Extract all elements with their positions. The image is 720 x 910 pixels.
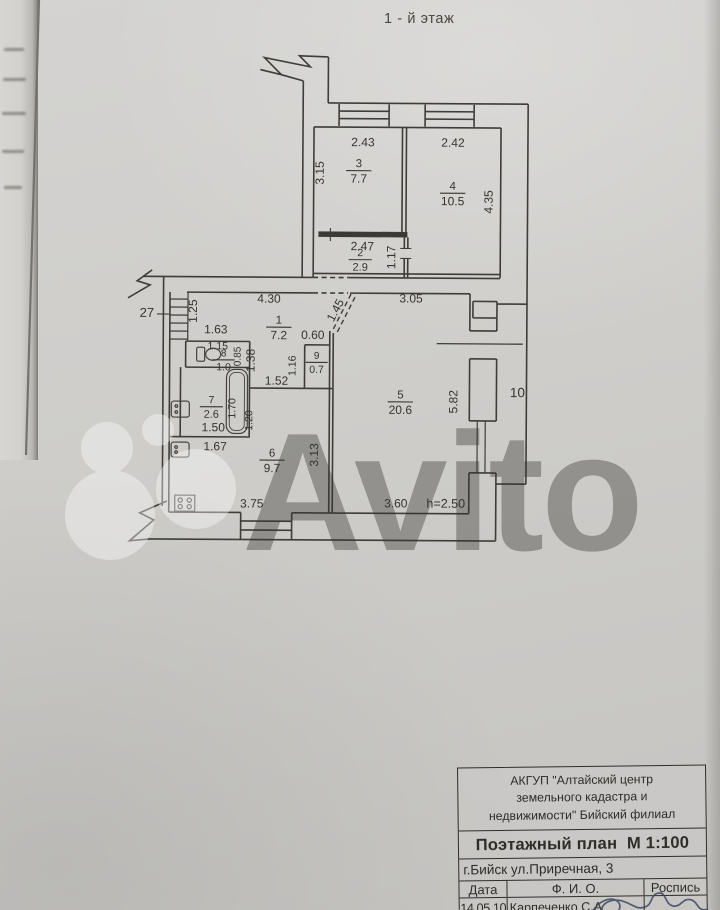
object-address: г.Бийск ул.Приречная, 3 bbox=[459, 856, 706, 881]
dimension-label: 2.47 bbox=[351, 239, 375, 253]
room-number: 6 bbox=[269, 448, 275, 460]
room-area: 2.6 bbox=[204, 409, 219, 421]
dimension-label: 27 bbox=[140, 305, 155, 320]
room-number: 5 bbox=[397, 389, 403, 401]
dimension-label: 1.25 bbox=[186, 299, 200, 323]
date-value: 14.05.10 bbox=[460, 898, 508, 910]
walls-layer bbox=[127, 55, 529, 543]
room-number: 1 bbox=[276, 315, 282, 327]
dimension-label: 1.67 bbox=[203, 439, 227, 453]
dimension-label: 3.60 bbox=[384, 496, 408, 510]
room-area: 7.2 bbox=[270, 328, 287, 342]
window-icon bbox=[339, 104, 389, 126]
wall-break-icon bbox=[260, 56, 328, 75]
dimension-label: 1.16 bbox=[287, 355, 299, 376]
room-area: 9.7 bbox=[264, 461, 281, 475]
dimension-label: 3.05 bbox=[399, 291, 423, 305]
room-area: 7.7 bbox=[350, 172, 367, 186]
window-icon bbox=[241, 512, 292, 539]
dimension-label: h=2.50 bbox=[426, 497, 465, 511]
room-number: 9 bbox=[314, 351, 320, 362]
dimension-label: 1.70 bbox=[226, 398, 238, 419]
room-area: 2.9 bbox=[353, 262, 368, 274]
dimension-label: 10 bbox=[510, 385, 525, 400]
dimension-label: 5.82 bbox=[446, 390, 460, 414]
dimension-label: 1.50 bbox=[201, 420, 225, 434]
dimension-label: 1.20 bbox=[243, 410, 255, 431]
dimension-label: 4.35 bbox=[482, 190, 496, 214]
dimension-label: 2.42 bbox=[441, 136, 465, 150]
signature-cell bbox=[645, 895, 707, 910]
dimension-label: 4.30 bbox=[257, 292, 281, 306]
stove-icon bbox=[175, 495, 195, 511]
stamp-value-row: 14.05.10 Карпеченко С.А bbox=[460, 895, 707, 910]
dimension-label: 0.60 bbox=[301, 328, 325, 342]
scanned-floorplan-photo: { "page": { "title": "1 - й этаж" }, "wa… bbox=[0, 0, 720, 910]
dimension-label: 1.63 bbox=[204, 322, 228, 336]
room-area: 10.5 bbox=[441, 194, 465, 208]
room-area: 0.7 bbox=[309, 364, 324, 376]
doorway-icon bbox=[437, 331, 523, 360]
kitchen-sink-icon bbox=[171, 442, 189, 457]
org-line: недвижимости" Бийский филиал bbox=[459, 805, 706, 825]
room-number: 4 bbox=[449, 181, 456, 193]
dimension-label: 3.75 bbox=[240, 496, 264, 510]
signature-icon bbox=[582, 881, 712, 910]
window-icon bbox=[425, 105, 474, 127]
dimension-label: 2.43 bbox=[351, 135, 375, 149]
document-title: Поэтажный план М 1:100 bbox=[459, 828, 706, 859]
dimension-label: 1.38 bbox=[244, 348, 258, 372]
dimension-label: 1.15 bbox=[207, 340, 228, 352]
dimension-label: 1.52 bbox=[265, 374, 289, 388]
dimension-label: 3.13 bbox=[307, 443, 321, 467]
dimension-label: 0.85 bbox=[233, 346, 244, 366]
room-number: 7 bbox=[208, 394, 214, 406]
dimension-label: 3.15 bbox=[313, 161, 327, 185]
wall-break-icon bbox=[128, 270, 152, 298]
window-icon bbox=[469, 421, 496, 473]
date-column-header: Дата bbox=[459, 881, 507, 898]
room-number: 3 bbox=[356, 158, 362, 170]
dimension-label: 1.17 bbox=[384, 245, 398, 269]
wall-break-icon bbox=[130, 501, 167, 541]
room-area: 1.0 bbox=[216, 361, 231, 373]
organization-name: АКГУП "Алтайский центр земельного кадаст… bbox=[458, 765, 706, 831]
title-block: АКГУП "Алтайский центр земельного кадаст… bbox=[457, 764, 708, 910]
room-area: 20.6 bbox=[389, 403, 413, 417]
